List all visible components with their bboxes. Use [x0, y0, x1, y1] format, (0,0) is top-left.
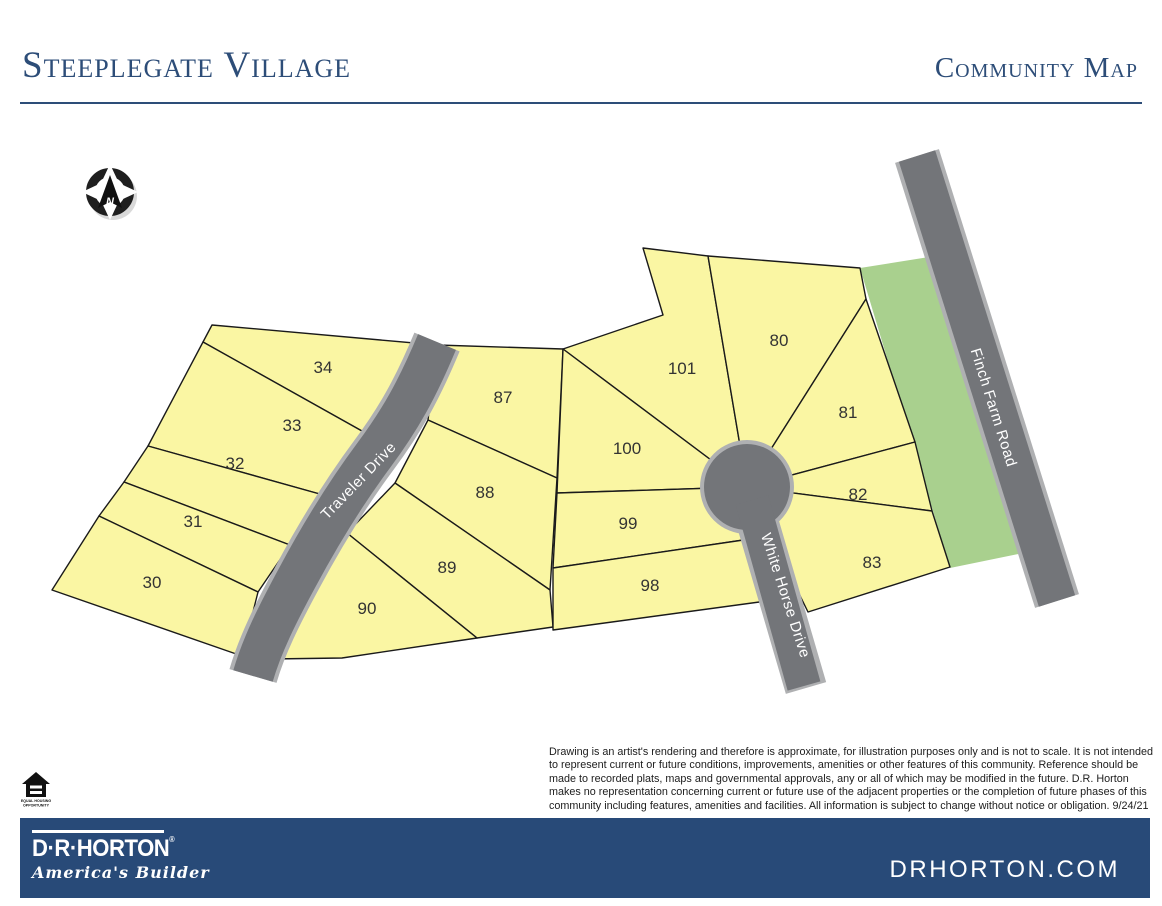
website-link[interactable]: DRHORTON.COM — [890, 856, 1120, 884]
lot-number-label-88: 88 — [476, 483, 495, 502]
logo-rule — [32, 830, 164, 833]
lot-number-label-100: 100 — [613, 439, 641, 458]
drhorton-logo: D·R·HORTON® America's Builder — [32, 830, 210, 882]
lot-polygons — [52, 248, 950, 659]
lot-number-label-32: 32 — [226, 454, 245, 473]
community-map-page: Steeplegate Village Community Map — [0, 0, 1162, 906]
lot-number-label-98: 98 — [641, 576, 660, 595]
disclaimer-text: Drawing is an artist's rendering and the… — [549, 746, 1153, 813]
lot-number-label-80: 80 — [770, 331, 789, 350]
lot-number-label-30: 30 — [143, 573, 162, 592]
lot-number-label-81: 81 — [839, 403, 858, 422]
lot-number-label-89: 89 — [438, 558, 457, 577]
lot-number-label-99: 99 — [619, 514, 638, 533]
footer-bar: D·R·HORTON® America's Builder DRHORTON.C… — [20, 818, 1150, 898]
lot-number-label-83: 83 — [863, 553, 882, 572]
lot-number-label-101: 101 — [668, 359, 696, 378]
logo-wordmark: D·R·HORTON® — [32, 835, 196, 863]
lot-number-label-33: 33 — [283, 416, 302, 435]
equal-housing-line2: OPPORTUNITY — [23, 804, 50, 808]
logo-tagline: America's Builder — [32, 863, 210, 882]
equal-housing-icon: EQUAL HOUSING OPPORTUNITY — [21, 772, 51, 808]
registered-mark: ® — [169, 835, 174, 844]
compass-north-icon: N — [82, 164, 138, 220]
lot-number-label-87: 87 — [494, 388, 513, 407]
lot-number-label-90: 90 — [358, 599, 377, 618]
lot-number-label-31: 31 — [184, 512, 203, 531]
lot-number-label-82: 82 — [849, 485, 868, 504]
compass-n-label: N — [106, 196, 115, 208]
equal-housing-line1: EQUAL HOUSING — [21, 799, 51, 803]
lot-number-label-34: 34 — [314, 358, 333, 377]
